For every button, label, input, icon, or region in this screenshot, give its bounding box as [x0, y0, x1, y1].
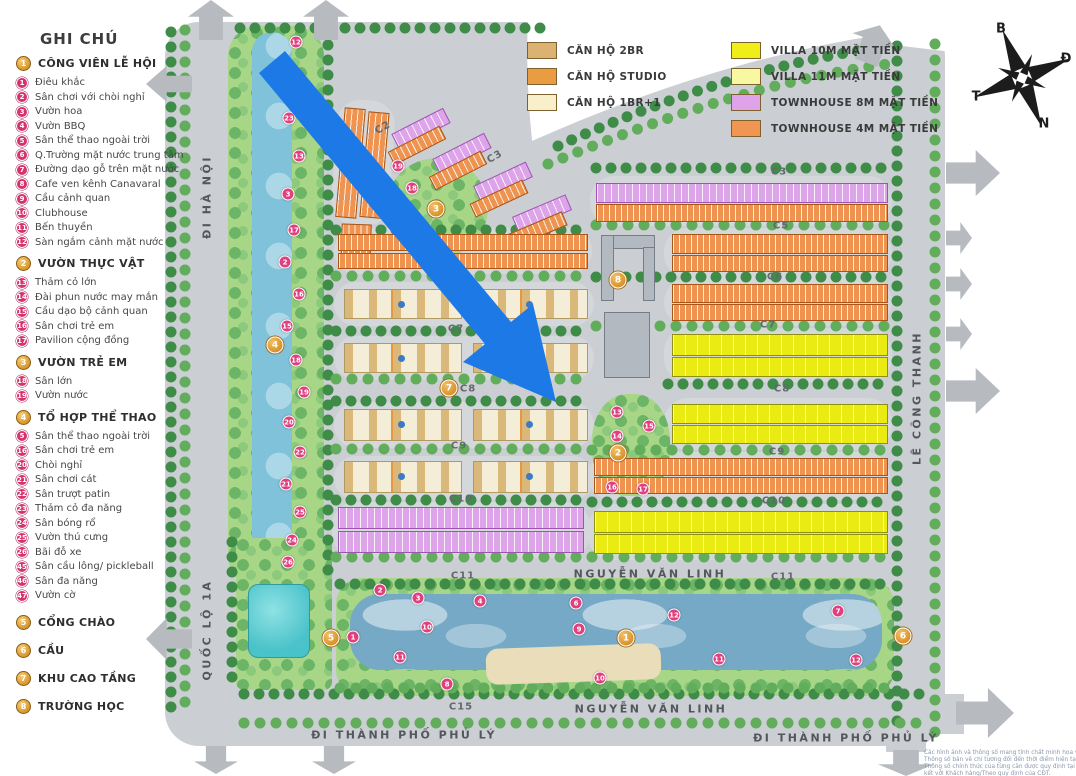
legend-item: 25Vườn thú cưng	[16, 532, 192, 544]
legend-item-label: Đường dạo gỗ trên mặt nước	[35, 164, 179, 175]
unit-legend-label: CĂN HỘ 2BR	[567, 45, 644, 57]
item-number-badge: 21	[16, 474, 28, 486]
legend-item-label: Q.Trường mặt nước trung tâm	[35, 150, 184, 161]
unit-legend-row: VILLA 11M MẶT TIỀN	[731, 68, 938, 85]
legend-item-label: Sân chơi trẻ em	[35, 445, 114, 456]
disclaimer-line: Thông số chính thức của từng căn được qu…	[924, 764, 1074, 771]
disclaimer-text: Các hình ảnh và thông số mang tính chất …	[924, 750, 1074, 776]
item-number-badge: 9	[16, 193, 28, 205]
legend-item: 8Cafe ven kênh Canavaral	[16, 179, 192, 191]
legend-item: 16Sân chơi trẻ em	[16, 321, 192, 333]
item-number-badge: 1	[16, 77, 28, 89]
legend-item: 5Sân thể thao ngoài trời	[16, 135, 192, 147]
legend-item: 47Vườn cờ	[16, 590, 192, 602]
item-number-badge: 13	[16, 277, 28, 289]
unit-legend-row: CĂN HỘ 2BR	[527, 42, 667, 59]
unit-color-swatch	[731, 68, 761, 85]
item-number-badge: 12	[16, 236, 28, 248]
section-number-badge: 4	[16, 410, 31, 425]
apartment-type-legend: CĂN HỘ 2BRCĂN HỘ STUDIOCĂN HỘ 1BR+1	[527, 42, 667, 120]
legend-item-label: Sân bóng rổ	[35, 518, 96, 529]
legend-item-label: Thảm cỏ đa năng	[35, 503, 122, 514]
legend-section-title: CÔNG VIÊN LỄ HỘI	[38, 57, 156, 70]
legend-item-label: Sân đa năng	[35, 576, 98, 587]
legend-item: 9Cầu cảnh quan	[16, 193, 192, 205]
legend-title: GHI CHÚ	[40, 30, 192, 48]
legend-item: 23Thảm cỏ đa năng	[16, 503, 192, 515]
legend-item: 26Bãi đỗ xe	[16, 547, 192, 559]
item-number-badge: 46	[16, 575, 28, 587]
item-number-badge: 18	[16, 375, 28, 387]
unit-color-swatch	[731, 120, 761, 137]
legend-item: 15Cầu dạo bộ cảnh quan	[16, 306, 192, 318]
legend-item: 19Vườn nước	[16, 390, 192, 402]
unit-color-swatch	[731, 42, 761, 59]
item-number-badge: 3	[16, 106, 28, 118]
legend-section-title: VƯỜN THỰC VẬT	[38, 257, 145, 270]
legend-item: 5Sân thể thao ngoài trời	[16, 431, 192, 443]
disclaimer-line: kết với Khách hàng/Theo quy định của CĐT…	[924, 771, 1074, 776]
compass-north-label: B	[996, 22, 1006, 37]
disclaimer-line: Các hình ảnh và thông số mang tính chất …	[924, 750, 1074, 757]
legend-item: 21Sân chơi cát	[16, 474, 192, 486]
item-number-badge: 5	[16, 135, 28, 147]
legend-item-label: Sân lớn	[35, 376, 72, 387]
legend-item-label: Bến thuyền	[35, 222, 93, 233]
legend-section-title: KHU CAO TẦNG	[38, 672, 136, 685]
item-number-badge: 16	[16, 445, 28, 457]
unit-legend-row: CĂN HỘ STUDIO	[527, 68, 667, 85]
legend-item: 7Đường dạo gỗ trên mặt nước	[16, 164, 192, 176]
legend-item: 1Điêu khắc	[16, 77, 192, 89]
compass-east-label: Đ	[1061, 52, 1072, 67]
legend-item: 12Sàn ngắm cảnh mặt nước	[16, 237, 192, 249]
legend-item-label: Vườn nước	[35, 390, 88, 401]
item-number-badge: 15	[16, 306, 28, 318]
item-number-badge: 47	[16, 590, 28, 602]
unit-legend-label: CĂN HỘ 1BR+1	[567, 97, 661, 109]
section-number-badge: 8	[16, 699, 31, 714]
legend-section-header: 4TỔ HỢP THỂ THAO	[16, 410, 192, 425]
unit-color-swatch	[731, 94, 761, 111]
item-number-badge: 16	[16, 320, 28, 332]
legend-item: 2Sân chơi với chòi nghỉ	[16, 92, 192, 104]
unit-color-swatch	[527, 68, 557, 85]
item-number-badge: 17	[16, 335, 28, 347]
legend-item-label: Đài phun nước may mắn	[35, 292, 158, 303]
unit-color-swatch	[527, 94, 557, 111]
legend-item-label: Sàn ngắm cảnh mặt nước	[35, 237, 163, 248]
legend-item-label: Chòi nghỉ	[35, 460, 82, 471]
legend-item-label: Pavilion cộng đồng	[35, 335, 129, 346]
legend-item-label: Sân trượt patin	[35, 489, 110, 500]
house-type-legend: VILLA 10M MẶT TIỀNVILLA 11M MẶT TIỀNTOWN…	[731, 42, 938, 146]
legend-section-header: 3VƯỜN TRẺ EM	[16, 355, 192, 370]
legend-item-label: Sân chơi với chòi nghỉ	[35, 92, 145, 103]
section-number-badge: 2	[16, 256, 31, 271]
legend-item-label: Cầu dạo bộ cảnh quan	[35, 306, 148, 317]
unit-legend-row: TOWNHOUSE 4M MẶT TIỀN	[731, 120, 938, 137]
legend-item-label: Vườn BBQ	[35, 121, 85, 132]
legend-sections: 1CÔNG VIÊN LỄ HỘI1Điêu khắc2Sân chơi với…	[16, 56, 192, 714]
legend-item: 24Sân bóng rổ	[16, 518, 192, 530]
unit-legend-row: CĂN HỘ 1BR+1	[527, 94, 667, 111]
item-number-badge: 11	[16, 222, 28, 234]
legend-item: 45Sân cầu lông/ pickleball	[16, 561, 192, 573]
legend-section-title: TRƯỜNG HỌC	[38, 700, 124, 713]
item-number-badge: 14	[16, 291, 28, 303]
section-number-badge: 5	[16, 615, 31, 630]
legend-item-label: Sân chơi cát	[35, 474, 96, 485]
legend-item-label: Cầu cảnh quan	[35, 193, 110, 204]
item-number-badge: 7	[16, 164, 28, 176]
item-number-badge: 24	[16, 517, 28, 529]
unit-color-swatch	[527, 42, 557, 59]
item-number-badge: 8	[16, 178, 28, 190]
legend-section-header: 6CẦU	[16, 643, 192, 658]
unit-legend-label: VILLA 10M MẶT TIỀN	[771, 45, 901, 57]
item-number-badge: 45	[16, 561, 28, 573]
unit-legend-row: VILLA 10M MẶT TIỀN	[731, 42, 938, 59]
section-number-badge: 7	[16, 671, 31, 686]
legend-item-label: Bãi đỗ xe	[35, 547, 81, 558]
legend-item: 13Thảm cỏ lớn	[16, 277, 192, 289]
legend-section-header: 7KHU CAO TẦNG	[16, 671, 192, 686]
legend-section-header: 2VƯỜN THỰC VẬT	[16, 256, 192, 271]
legend-item: 11Bến thuyền	[16, 222, 192, 234]
section-number-badge: 3	[16, 355, 31, 370]
legend-item-label: Sân chơi trẻ em	[35, 321, 114, 332]
item-number-badge: 25	[16, 532, 28, 544]
legend-item: 17Pavilion cộng đồng	[16, 335, 192, 347]
legend-section-title: CỔNG CHÀO	[38, 616, 115, 629]
legend-item: 22Sân trượt patin	[16, 489, 192, 501]
legend-panel: GHI CHÚ 1CÔNG VIÊN LỄ HỘI1Điêu khắc2Sân …	[16, 26, 192, 720]
unit-legend-row: TOWNHOUSE 8M MẶT TIỀN	[731, 94, 938, 111]
item-number-badge: 2	[16, 91, 28, 103]
item-number-badge: 23	[16, 503, 28, 515]
legend-item-label: Sân thể thao ngoài trời	[35, 135, 150, 146]
item-number-badge: 4	[16, 120, 28, 132]
legend-section-header: 1CÔNG VIÊN LỄ HỘI	[16, 56, 192, 71]
legend-section-title: CẦU	[38, 644, 64, 657]
item-number-badge: 19	[16, 390, 28, 402]
item-number-badge: 22	[16, 488, 28, 500]
legend-item: 16Sân chơi trẻ em	[16, 445, 192, 457]
disclaimer-line: Thông số bản vẽ chỉ tương đối đến thời đ…	[924, 757, 1074, 764]
unit-legend-label: CĂN HỘ STUDIO	[567, 71, 667, 83]
legend-section-header: 5CỔNG CHÀO	[16, 615, 192, 630]
legend-item: 4Vườn BBQ	[16, 121, 192, 133]
unit-legend-label: VILLA 11M MẶT TIỀN	[771, 71, 901, 83]
legend-item-label: Vườn hoa	[35, 106, 82, 117]
legend-item-label: Thảm cỏ lớn	[35, 277, 97, 288]
legend-item: 3Vườn hoa	[16, 106, 192, 118]
unit-legend-label: TOWNHOUSE 4M MẶT TIỀN	[771, 123, 938, 135]
legend-item: 10Clubhouse	[16, 208, 192, 220]
legend-item: 18Sân lớn	[16, 376, 192, 388]
compass-south-label: N	[1039, 117, 1050, 132]
legend-item: 6Q.Trường mặt nước trung tâm	[16, 150, 192, 162]
legend-section-title: VƯỜN TRẺ EM	[38, 356, 127, 369]
item-number-badge: 5	[16, 430, 28, 442]
legend-item-label: Sân cầu lông/ pickleball	[35, 561, 154, 572]
item-number-badge: 26	[16, 546, 28, 558]
master-plan-canvas: ĐI HÀ NỘIQUỐC LỘ 1ALÊ CÔNG THANHNGUYỄN V…	[0, 0, 1076, 776]
legend-item: 46Sân đa năng	[16, 576, 192, 588]
legend-item-label: Sân thể thao ngoài trời	[35, 431, 150, 442]
section-number-badge: 6	[16, 643, 31, 658]
legend-item: 14Đài phun nước may mắn	[16, 292, 192, 304]
legend-item-label: Vườn cờ	[35, 590, 75, 601]
compass-rose-icon	[954, 10, 1076, 145]
legend-section-title: TỔ HỢP THỂ THAO	[38, 411, 157, 424]
item-number-badge: 6	[16, 149, 28, 161]
compass-west-label: T	[972, 90, 981, 105]
highlight-arrow	[259, 51, 556, 402]
legend-section-header: 8TRƯỜNG HỌC	[16, 699, 192, 714]
legend-item-label: Vườn thú cưng	[35, 532, 108, 543]
legend-item-label: Cafe ven kênh Canavaral	[35, 179, 161, 190]
section-number-badge: 1	[16, 56, 31, 71]
legend-item-label: Clubhouse	[35, 208, 88, 219]
unit-legend-label: TOWNHOUSE 8M MẶT TIỀN	[771, 97, 938, 109]
legend-item: 20Chòi nghỉ	[16, 460, 192, 472]
legend-item-label: Điêu khắc	[35, 77, 85, 88]
item-number-badge: 10	[16, 207, 28, 219]
item-number-badge: 20	[16, 459, 28, 471]
